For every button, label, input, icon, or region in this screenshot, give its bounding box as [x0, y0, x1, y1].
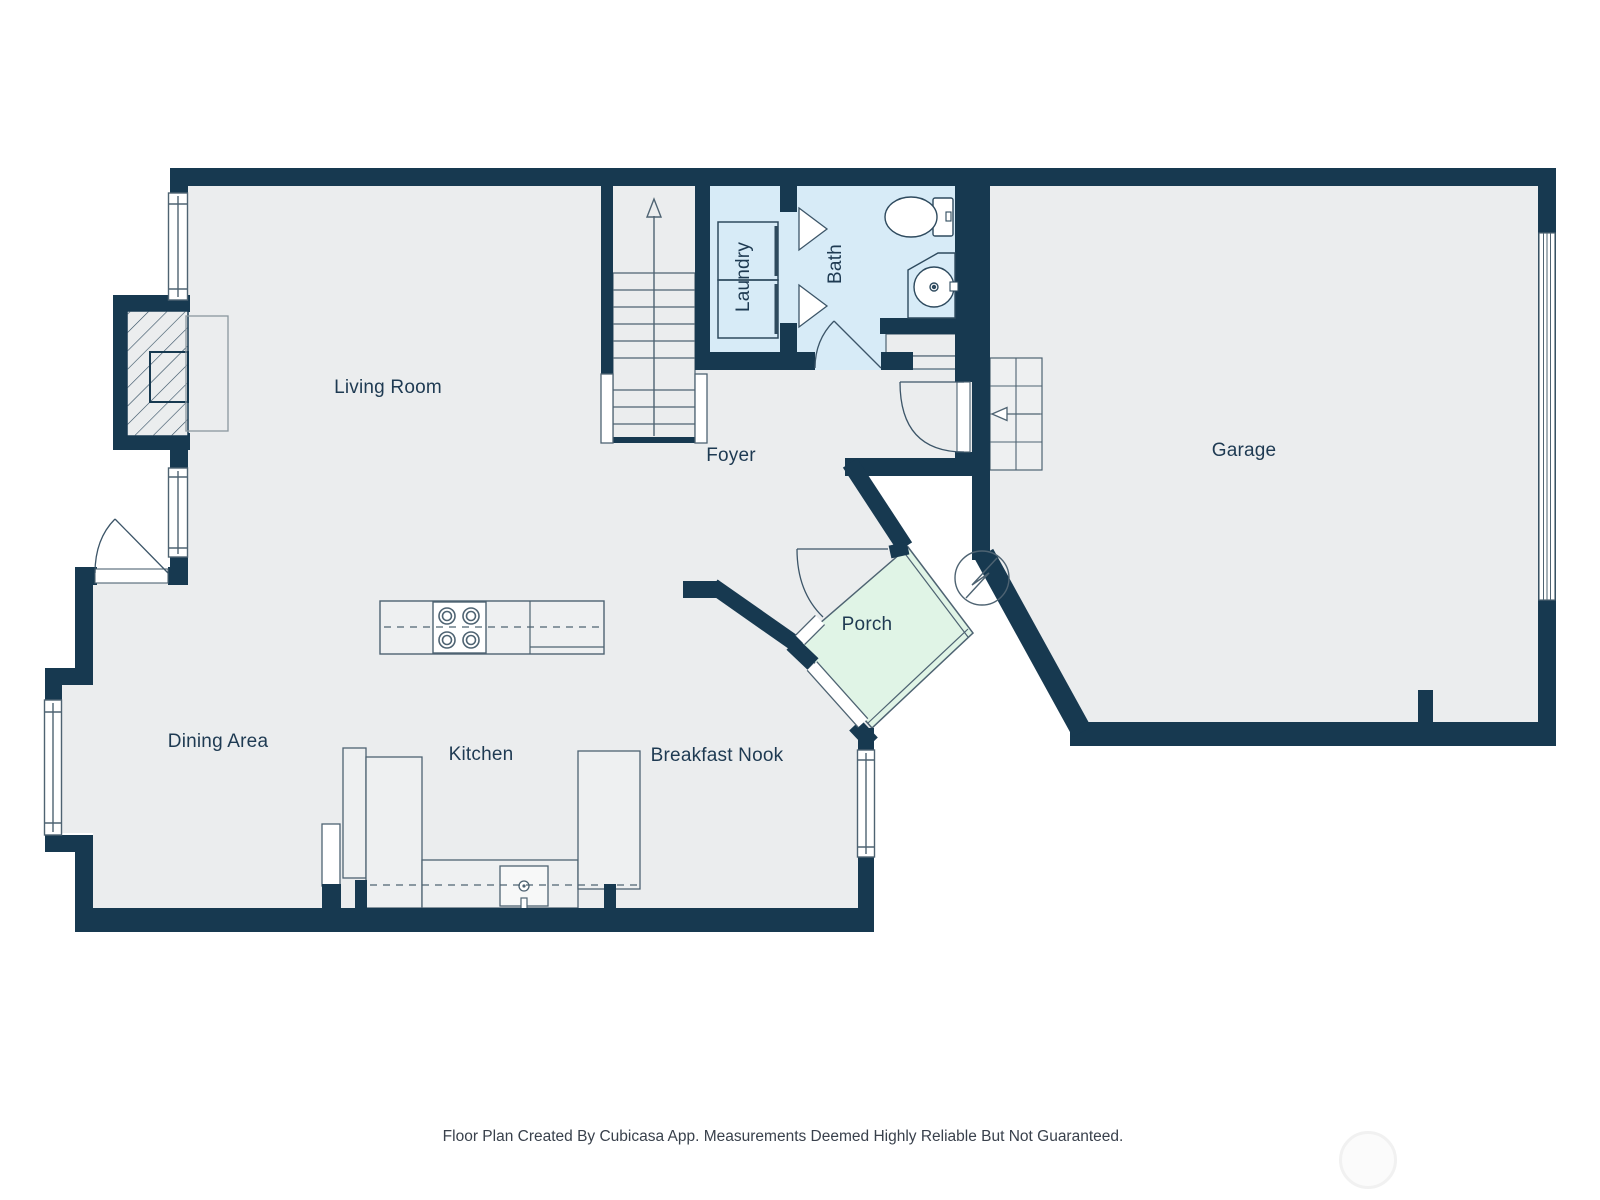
garage-steps [990, 358, 1042, 470]
room-label-garage: Garage [1212, 440, 1277, 462]
garage-wall-bottom [1070, 722, 1556, 746]
wall-top [170, 168, 1556, 186]
half-wall [322, 824, 340, 886]
room-label-porch: Porch [842, 614, 893, 636]
garage-wall-left [972, 186, 990, 560]
front-door-opening [95, 569, 168, 583]
floor-plan-page: Living Room Foyer Garage Porch Dining Ar… [0, 0, 1600, 1200]
wall-bottom [75, 908, 874, 932]
garage-door [1539, 233, 1555, 600]
refrigerator [343, 748, 366, 878]
stairs-bottom-edge [611, 437, 697, 443]
garage-entry-opening [957, 382, 970, 452]
room-label-laundry: Laundry [733, 242, 755, 312]
room-label-breakfast-nook: Breakfast Nook [651, 745, 784, 767]
kitchen-island [380, 601, 604, 654]
room-label-foyer: Foyer [706, 445, 756, 467]
toilet [885, 197, 953, 237]
bath-wall-bottom [695, 352, 815, 370]
window-breakfast-nook [858, 750, 875, 857]
laundry-wall-left [695, 186, 710, 368]
floor-plan-drawing [0, 0, 1600, 1200]
window-living-upper [169, 193, 188, 300]
room-label-kitchen: Kitchen [449, 744, 514, 766]
window-living-lower [169, 468, 188, 557]
cubicasa-logo-watermark [1339, 1131, 1397, 1189]
room-label-bath: Bath [825, 244, 847, 284]
footer-disclaimer: Floor Plan Created By Cubicasa App. Meas… [443, 1128, 1124, 1146]
garage-stub [1418, 690, 1433, 722]
wall-left-mid [75, 567, 93, 685]
window-dining-bay [45, 700, 62, 835]
room-label-dining-area: Dining Area [168, 731, 268, 753]
front-door [95, 519, 168, 573]
room-label-living-room: Living Room [334, 377, 442, 399]
stairwell-wall-left [601, 186, 613, 374]
